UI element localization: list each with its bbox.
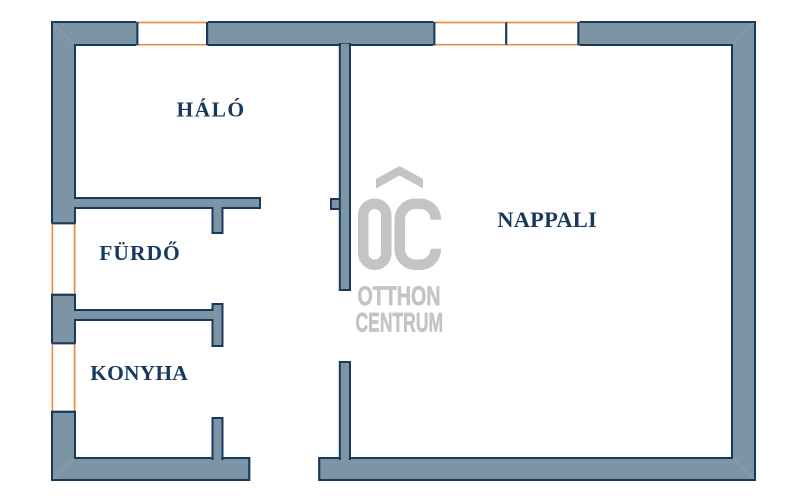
svg-text:OTTHON: OTTHON	[358, 281, 441, 311]
svg-text:CENTRUM: CENTRUM	[356, 308, 444, 338]
svg-text:NAPPALI: NAPPALI	[497, 207, 597, 232]
svg-text:FÜRDŐ: FÜRDŐ	[99, 241, 180, 265]
svg-text:KONYHA: KONYHA	[90, 361, 188, 385]
